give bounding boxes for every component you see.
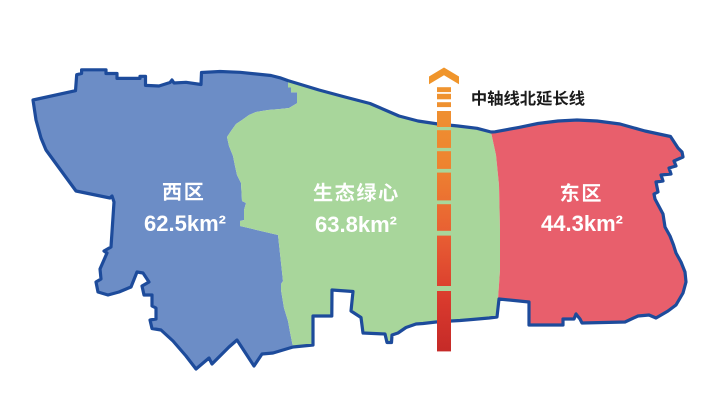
svg-text:44.3km²: 44.3km² bbox=[541, 211, 623, 236]
svg-text:63.8km²: 63.8km² bbox=[315, 212, 397, 237]
svg-text:62.5km²: 62.5km² bbox=[144, 211, 226, 236]
